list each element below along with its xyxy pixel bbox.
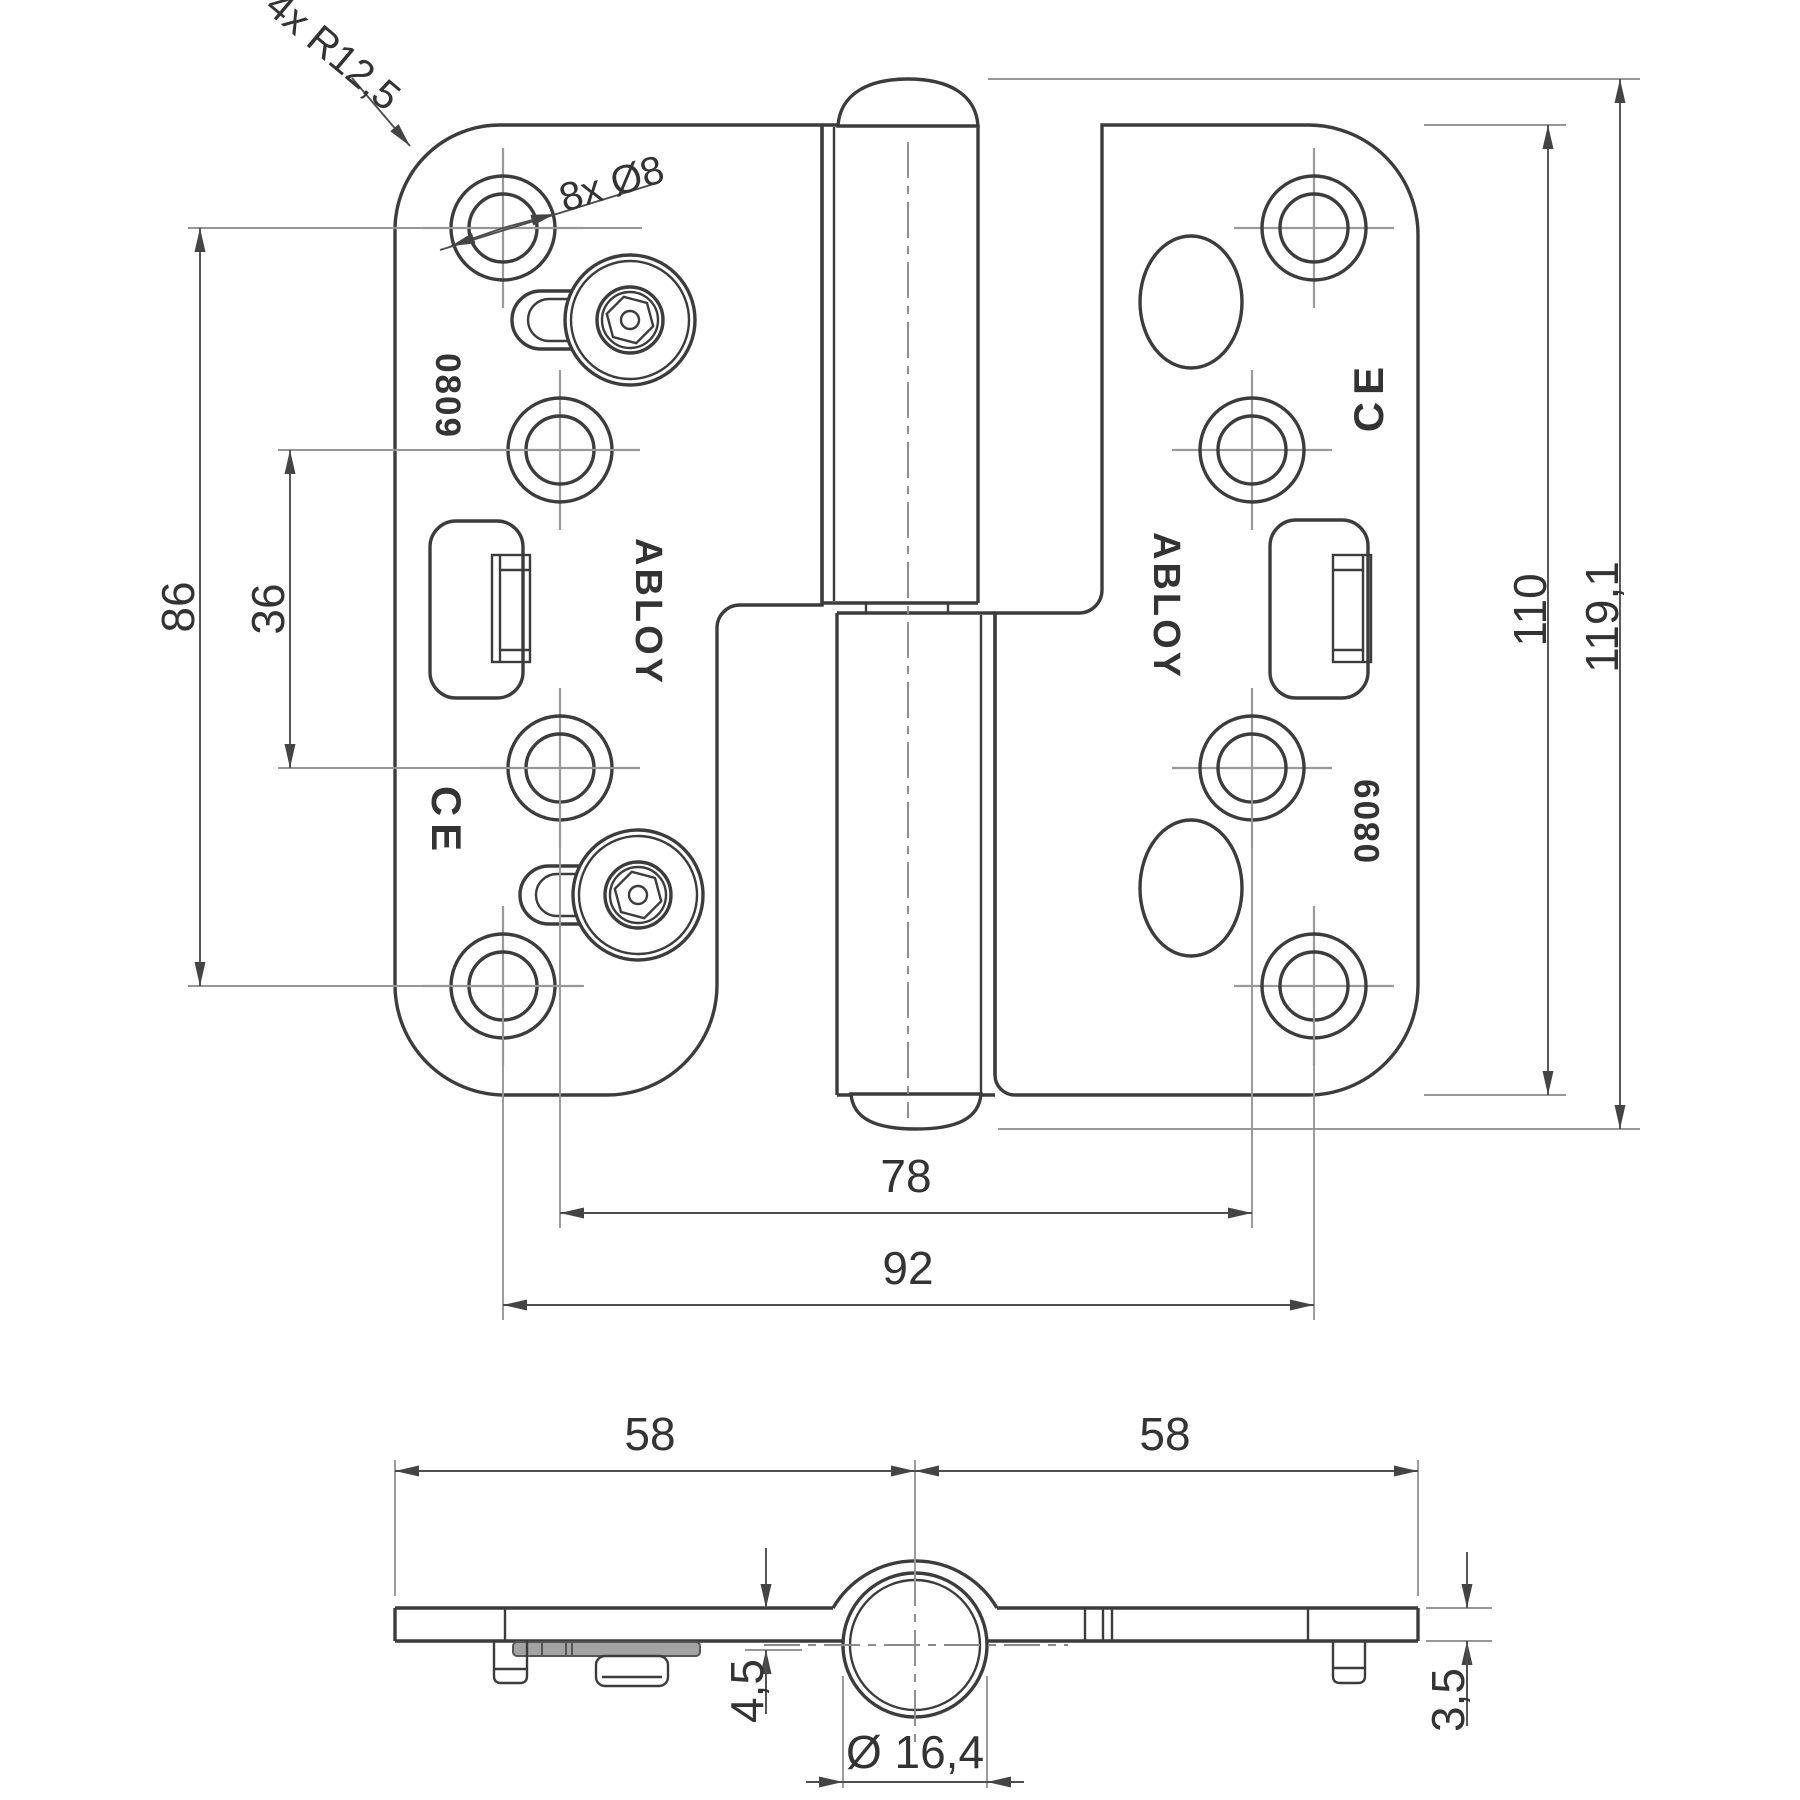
brand-text-left: ABLOY bbox=[627, 538, 669, 686]
ce-mark-left: CE bbox=[423, 786, 470, 858]
model-text-right: 0809 bbox=[1348, 777, 1387, 863]
dim-78: 78 bbox=[880, 1150, 931, 1202]
dim-16-4: Ø 16,4 bbox=[846, 1726, 984, 1778]
underside-hook-right bbox=[1333, 1641, 1365, 1683]
brand-text-right: ABLOY bbox=[1145, 532, 1187, 680]
underside-screw-head bbox=[596, 1656, 668, 1686]
label-corner-radius: 4x R12,5 bbox=[258, 0, 409, 119]
dim-58-right: 58 bbox=[1139, 1408, 1190, 1460]
dim-4-5: 4,5 bbox=[721, 1659, 773, 1723]
leader-corner-radius: 4x R12,5 bbox=[258, 0, 410, 146]
model-text-left: 0809 bbox=[428, 353, 467, 439]
underside-latch-plate bbox=[513, 1642, 700, 1686]
hinge-technical-drawing: ABLOY ABLOY 0809 0809 CE CE 86 36 bbox=[0, 0, 1800, 1800]
pin-top-cap bbox=[838, 79, 978, 126]
dim-36: 36 bbox=[242, 583, 294, 634]
ce-mark-right: CE bbox=[1345, 360, 1392, 432]
pin-bottom-cap bbox=[851, 1094, 981, 1129]
upper-knuckle bbox=[822, 79, 978, 603]
dim-86: 86 bbox=[152, 581, 204, 632]
front-view: ABLOY ABLOY 0809 0809 CE CE 86 36 bbox=[152, 0, 1640, 1320]
dim-110: 110 bbox=[1504, 573, 1556, 646]
dim-92: 92 bbox=[882, 1242, 933, 1294]
drawing-canvas: ABLOY ABLOY 0809 0809 CE CE 86 36 bbox=[0, 0, 1800, 1800]
top-view: 58 58 4,5 3,5 Ø 16,4 bbox=[395, 1408, 1492, 1788]
dim-3-5: 3,5 bbox=[1422, 1668, 1474, 1732]
lower-knuckle bbox=[837, 613, 995, 1129]
dim-58-left: 58 bbox=[624, 1408, 675, 1460]
dim-119-1: 119,1 bbox=[1576, 561, 1628, 673]
right-leaf-outline bbox=[995, 125, 1418, 1095]
